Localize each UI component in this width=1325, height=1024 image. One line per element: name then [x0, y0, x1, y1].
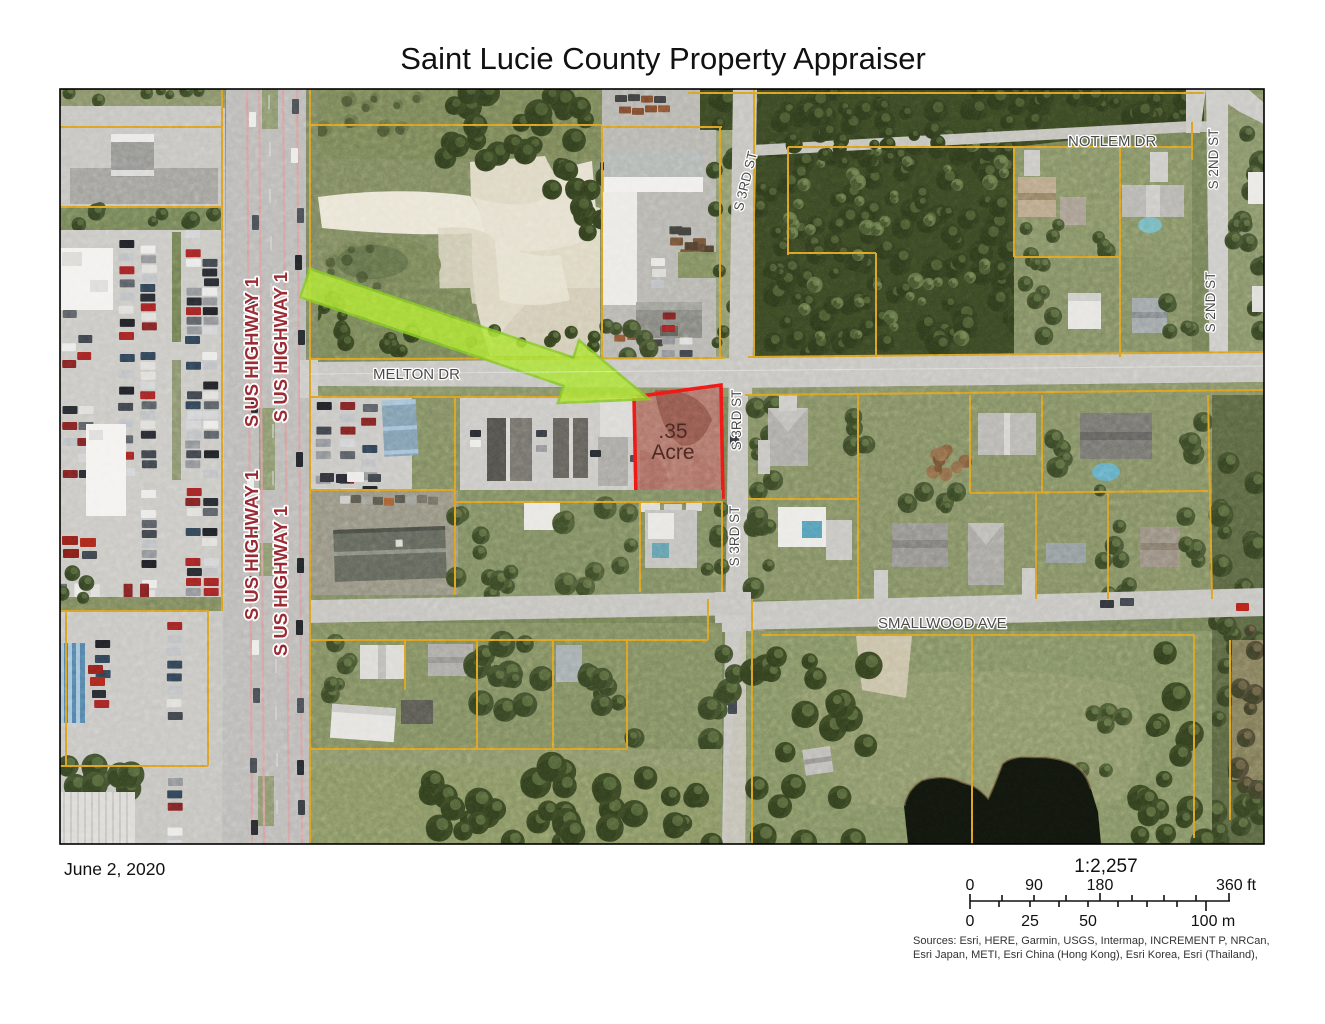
svg-text:June 2, 2020: June 2, 2020	[64, 859, 165, 879]
svg-text:Esri Japan, METI, Esri China (: Esri Japan, METI, Esri China (Hong Kong)…	[913, 949, 1258, 961]
svg-text:1:2,257: 1:2,257	[1074, 856, 1137, 877]
svg-text:Saint Lucie County Property Ap: Saint Lucie County Property Appraiser	[400, 41, 926, 76]
svg-text:Sources: Esri, HERE, Garmin, U: Sources: Esri, HERE, Garmin, USGS, Inter…	[913, 935, 1270, 947]
svg-text:50: 50	[1079, 913, 1097, 930]
svg-text:0: 0	[966, 877, 975, 894]
svg-text:0: 0	[966, 913, 975, 930]
svg-text:360 ft: 360 ft	[1216, 877, 1257, 894]
svg-text:90: 90	[1025, 877, 1043, 894]
svg-text:100 m: 100 m	[1191, 913, 1235, 930]
svg-text:180: 180	[1087, 877, 1114, 894]
svg-text:25: 25	[1021, 913, 1039, 930]
